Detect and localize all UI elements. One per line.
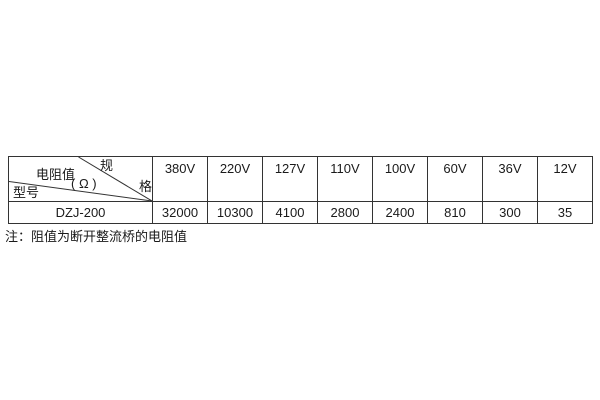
resistance-cell-380v: 32000 bbox=[153, 202, 208, 224]
model-cell: DZJ-200 bbox=[9, 202, 153, 224]
resistance-cell-110v: 2800 bbox=[318, 202, 373, 224]
corner-label-model: 型号 bbox=[13, 186, 39, 200]
resistance-cell-60v: 810 bbox=[428, 202, 483, 224]
resistance-cell-36v: 300 bbox=[483, 202, 538, 224]
corner-label-spec-top: 规 bbox=[100, 159, 113, 173]
corner-label-spec-bottom: 格 bbox=[139, 180, 152, 194]
resistance-cell-220v: 10300 bbox=[208, 202, 263, 224]
corner-label-resistance: 电阻值 bbox=[36, 168, 75, 182]
corner-header-cell: 规 格 电阻值 ( Ω ) 型号 bbox=[9, 157, 153, 202]
spec-table: 规 格 电阻值 ( Ω ) 型号 380V 220V 127V 110V 100… bbox=[8, 156, 593, 224]
page: 规 格 电阻值 ( Ω ) 型号 380V 220V 127V 110V 100… bbox=[0, 0, 600, 400]
column-header-127v: 127V bbox=[263, 157, 318, 202]
column-header-12v: 12V bbox=[538, 157, 593, 202]
column-header-110v: 110V bbox=[318, 157, 373, 202]
column-header-100v: 100V bbox=[373, 157, 428, 202]
resistance-cell-12v: 35 bbox=[538, 202, 593, 224]
corner-label-ohm-unit: ( Ω ) bbox=[71, 177, 97, 191]
column-header-36v: 36V bbox=[483, 157, 538, 202]
resistance-cell-100v: 2400 bbox=[373, 202, 428, 224]
resistance-cell-127v: 4100 bbox=[263, 202, 318, 224]
column-header-380v: 380V bbox=[153, 157, 208, 202]
column-header-60v: 60V bbox=[428, 157, 483, 202]
column-header-220v: 220V bbox=[208, 157, 263, 202]
footnote-text: 注：阻值为断开整流桥的电阻值 bbox=[5, 229, 187, 244]
